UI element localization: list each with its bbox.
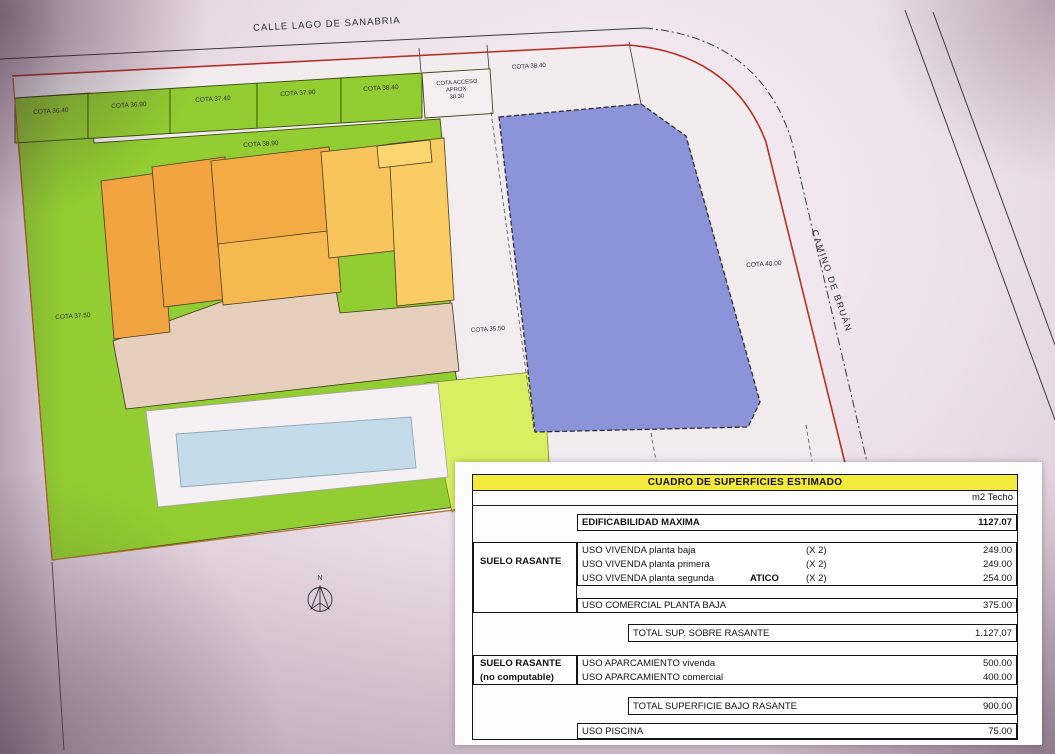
- row-multiplier: (X 2): [806, 559, 827, 570]
- comercial-row: USO COMERCIAL PLANTA BAJA 375.00: [577, 598, 1017, 613]
- table-title-text: CUADRO DE SUPERFICIES ESTIMADO: [648, 477, 843, 488]
- table-row: USO VIVENDA planta segunda ATICO (X 2) 2…: [578, 571, 1016, 585]
- row-name: USO VIVENDA planta primera: [578, 559, 710, 570]
- surface-table: CUADRO DE SUPERFICIES ESTIMADO m2 Techo …: [472, 474, 1018, 740]
- row-name: USO VIVENDA planta baja: [578, 545, 696, 556]
- road-far-line-2: [933, 12, 1055, 345]
- edificabilidad-band: EDIFICABILIDAD MAXIMA 1127.07: [473, 514, 1017, 531]
- suelo-rasante-band: SUELO RASANTE USO VIVENDA planta baja (X…: [473, 542, 1017, 613]
- total-bajo-label: TOTAL SUPERFICIE BAJO RASANTE: [629, 701, 797, 712]
- aparcamiento-box: USO APARCAMIENTO vivenda 500.00 USO APAR…: [577, 655, 1017, 685]
- row-name: USO COMERCIAL PLANTA BAJA: [578, 600, 726, 611]
- north-arrow: [308, 586, 332, 612]
- row-value: 400.00: [983, 672, 1012, 683]
- surface-table-panel: CUADRO DE SUPERFICIES ESTIMADO m2 Techo …: [455, 462, 1042, 745]
- cota-cell-3: [170, 83, 257, 133]
- bajo-rasante-band: SUELO RASANTE (no computable) USO APARCA…: [473, 655, 1017, 685]
- total-sobre-row: TOTAL SUP. SOBRE RASANTE 1.127,07: [628, 624, 1017, 642]
- bottom-left-line: [52, 562, 64, 750]
- cota-acceso-line3: 38.30: [450, 94, 465, 101]
- piscina-row: USO PISCINA 75.00: [577, 723, 1017, 739]
- row-name: USO APARCAMIENTO vivenda: [578, 658, 715, 669]
- table-row: USO VIVENDA planta baja (X 2) 249.00: [578, 543, 1016, 557]
- bajo-rasante-label-1: SUELO RASANTE: [480, 657, 576, 671]
- road-far-line-1: [905, 10, 1055, 420]
- piscina-band: USO PISCINA 75.00: [473, 723, 1017, 739]
- street-right-label: CAMINO DE BRUÁN: [810, 229, 854, 334]
- row-name: USO APARCAMIENTO comercial: [578, 672, 723, 683]
- cota-cell-4: [257, 78, 341, 128]
- edificabilidad-row: EDIFICABILIDAD MAXIMA 1127.07: [577, 514, 1017, 531]
- suelo-rasante-label: SUELO RASANTE: [480, 556, 561, 567]
- total-sobre-label: TOTAL SUP. SOBRE RASANTE: [629, 628, 769, 639]
- table-row: USO VIVENDA planta primera (X 2) 249.00: [578, 557, 1016, 571]
- cota-cell-5: [341, 73, 422, 123]
- cota-cell-1: [15, 94, 88, 144]
- unit-header-text: m2 Techo: [972, 492, 1013, 503]
- vivienda-box: USO VIVENDA planta baja (X 2) 249.00 USO…: [577, 542, 1017, 586]
- row-value: 500.00: [983, 658, 1012, 669]
- north-label: N: [317, 573, 322, 582]
- total-bajo-value: 900.00: [983, 701, 1012, 712]
- total-bajo-row: TOTAL SUPERFICIE BAJO RASANTE 900.00: [628, 697, 1017, 715]
- table-title: CUADRO DE SUPERFICIES ESTIMADO: [473, 475, 1017, 491]
- row-multiplier: (X 2): [806, 573, 827, 584]
- edificabilidad-label: EDIFICABILIDAD MAXIMA: [578, 517, 700, 528]
- row-tag: ATICO: [750, 573, 779, 584]
- cota-cell-2: [88, 89, 170, 139]
- row-value: 249.00: [983, 545, 1012, 556]
- row-value: 375.00: [983, 600, 1012, 611]
- edificabilidad-value: 1127.07: [978, 517, 1012, 528]
- row-name: USO PISCINA: [578, 726, 643, 737]
- row-multiplier: (X 2): [806, 545, 827, 556]
- unit-header-row: m2 Techo: [473, 491, 1017, 506]
- row-value: 254.00: [983, 573, 1012, 584]
- row-value: 75.00: [988, 726, 1012, 737]
- table-row: USO APARCAMIENTO vivenda 500.00: [578, 656, 1016, 670]
- suelo-rasante-header: SUELO RASANTE: [473, 542, 577, 613]
- street-top-label: CALLE LAGO DE SANABRIA: [253, 15, 401, 34]
- table-row: USO APARCAMIENTO comercial 400.00: [578, 670, 1016, 684]
- row-value: 249.00: [983, 559, 1012, 570]
- total-sobre-value: 1.127,07: [975, 628, 1012, 639]
- site-plan-photo: CALLE LAGO DE SANABRIA CAMINO DE BRUÁN C…: [0, 0, 1055, 754]
- row-name: USO VIVENDA planta segunda: [578, 573, 714, 584]
- bajo-rasante-label-2: (no computable): [480, 671, 576, 685]
- bajo-rasante-header: SUELO RASANTE (no computable): [473, 655, 577, 685]
